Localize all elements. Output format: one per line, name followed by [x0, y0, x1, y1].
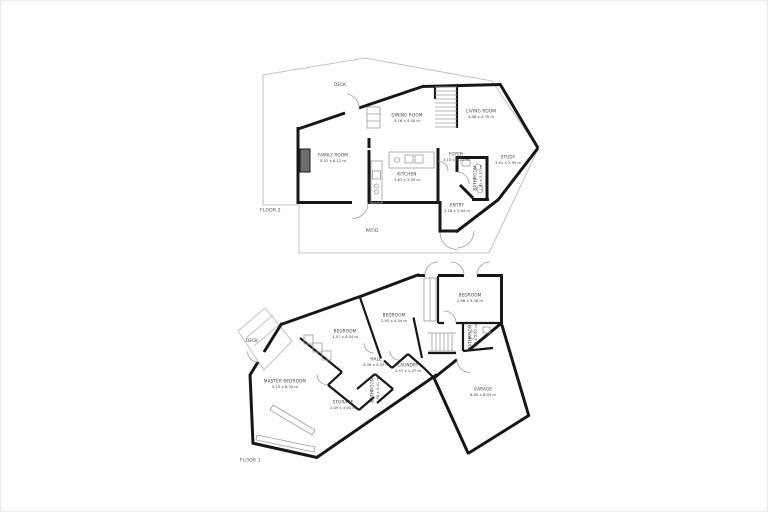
room-label-deck: DECK	[246, 339, 258, 344]
room-label-bathroom: BATHROOM1.37 x 2.27 m	[468, 324, 478, 350]
room-label-hall: HALL4.39 x 3.33 m	[363, 357, 389, 367]
floor-2-label: FLOOR 2	[260, 208, 281, 213]
room-label-family-room: FAMILY ROOM5.31 x 6.12 m	[318, 153, 348, 163]
room-label-bedroom: BEDROOM2.95 x 4.04 m	[381, 313, 407, 323]
room-label-bedroom: BEDROOM2.96 x 3.58 m	[457, 293, 483, 303]
room-label-deck: DECK	[334, 83, 346, 88]
room-label-patio: PATIO	[366, 229, 379, 234]
room-label-living-room: LIVING ROOM4.06 x 4.70 m	[466, 109, 496, 119]
room-labels-layer: FLOOR 2 FLOOR 1 DECKDINING ROOM5.16 x 4.…	[1, 1, 768, 512]
room-label-foyer: FOYER3.15 x 3.21 m	[443, 152, 469, 162]
room-label-kitchen: KITCHEN3.67 x 3.59 m	[394, 172, 420, 182]
room-label-bathroom: BATHROOM1.91 x 2.21 m	[473, 165, 483, 191]
room-label-bathroom: BATHROOM1.58 x 3.41 m	[370, 377, 380, 403]
room-label-dining-room: DINING ROOM5.16 x 4.40 m	[391, 113, 422, 123]
room-label-storage: STORAGE2.09 x 3.04 m	[330, 400, 356, 410]
room-label-master-bedroom: MASTER BEDROOM5.15 x 6.34 m	[264, 379, 306, 389]
room-label-study: STUDY3.91 x 2.95 m	[495, 155, 521, 165]
floor-1-label: FLOOR 1	[240, 458, 261, 463]
room-label-bedroom: BEDROOM3.47 x 4.04 m	[332, 329, 358, 339]
room-label-garage: GARAGE8.05 x 6.03 m	[470, 387, 496, 397]
room-label-entry: ENTRY3.16 x 2.94 m	[444, 203, 470, 213]
room-label-laundry: LAUNDRY2.57 x 1.47 m	[395, 363, 421, 373]
floor-plan-image: FLOOR 2 FLOOR 1 DECKDINING ROOM5.16 x 4.…	[0, 0, 768, 512]
